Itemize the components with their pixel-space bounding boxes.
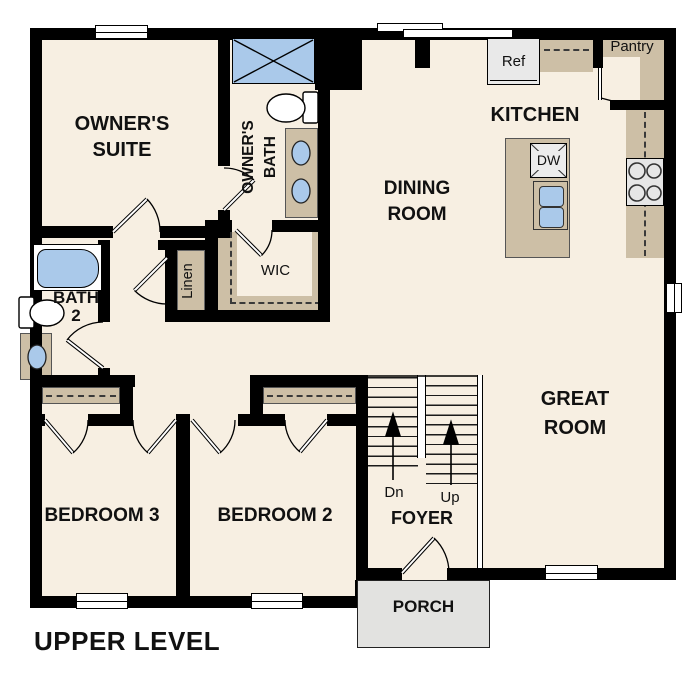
plan-title: UPPER LEVEL [34,624,254,658]
room-label-linen: Linen [179,246,207,316]
cooktop-burners [629,163,661,201]
door-bath2 [67,322,103,368]
stairs-down-label: Dn [379,483,409,503]
room-label-dining-room: DINING ROOM [352,176,482,228]
door-bedroom3 [133,420,176,453]
door-bedroom2 [192,420,235,453]
door-wic [236,230,272,256]
room-label-bedroom2: BEDROOM 2 [205,503,345,528]
stairs-up-arrow [444,422,458,485]
door-bedroom3-closet [45,420,88,453]
room-label-foyer: FOYER [370,507,474,531]
room-label-owners-bath: OWNER'S BATH [238,97,286,217]
room-label-kitchen: KITCHEN [465,102,605,128]
floor-plan: Ref DW [0,0,687,687]
stairs-up-label: Up [435,488,465,508]
room-label-bedroom3: BEDROOM 3 [32,503,172,528]
door-bedroom2-closet [285,420,327,452]
room-label-wic: WIC [238,261,313,281]
door-owners-suite [113,199,160,232]
door-hall [135,258,168,304]
stairs-down-arrow [386,414,400,480]
dishwasher-label: DW [536,151,561,169]
room-label-owners-suite: OWNER'S SUITE [47,111,197,163]
room-label-great-room: GREAT ROOM [500,385,650,443]
room-label-pantry: Pantry [600,37,664,57]
door-pantry [600,68,643,106]
shower-x-icon [234,40,313,82]
room-label-porch: PORCH [357,596,490,618]
room-label-bath2: BATH 2 [42,289,110,325]
door-front [402,538,449,573]
